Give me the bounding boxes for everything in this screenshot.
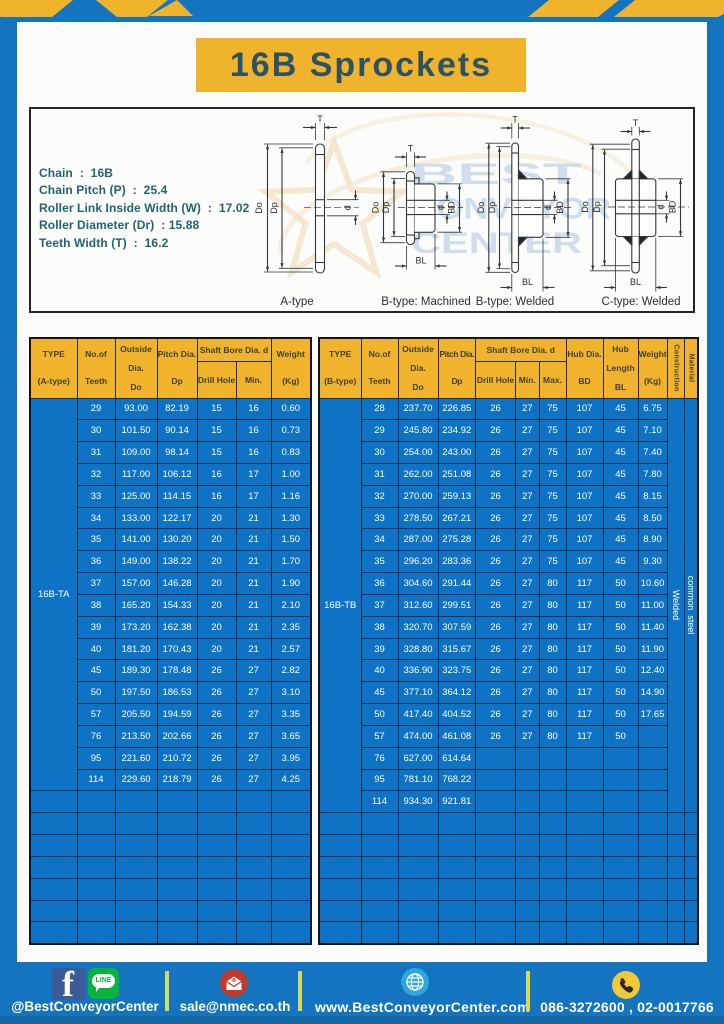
- svg-text:BD: BD: [555, 201, 565, 214]
- svg-text:T: T: [317, 114, 323, 124]
- svg-text:Dp: Dp: [487, 202, 497, 214]
- svg-text:BL: BL: [415, 256, 426, 266]
- svg-text:BL: BL: [522, 277, 533, 287]
- svg-text:T: T: [633, 118, 639, 128]
- svg-text:BD: BD: [668, 200, 678, 213]
- svg-text:BL: BL: [630, 277, 641, 287]
- svg-text:d: d: [655, 204, 665, 209]
- svg-text:Do: Do: [476, 202, 486, 214]
- svg-text:Do: Do: [580, 201, 590, 213]
- svg-text:d: d: [543, 205, 553, 210]
- svg-text:T: T: [408, 144, 414, 154]
- svg-text:T: T: [512, 115, 518, 125]
- svg-text:Dp: Dp: [592, 201, 602, 213]
